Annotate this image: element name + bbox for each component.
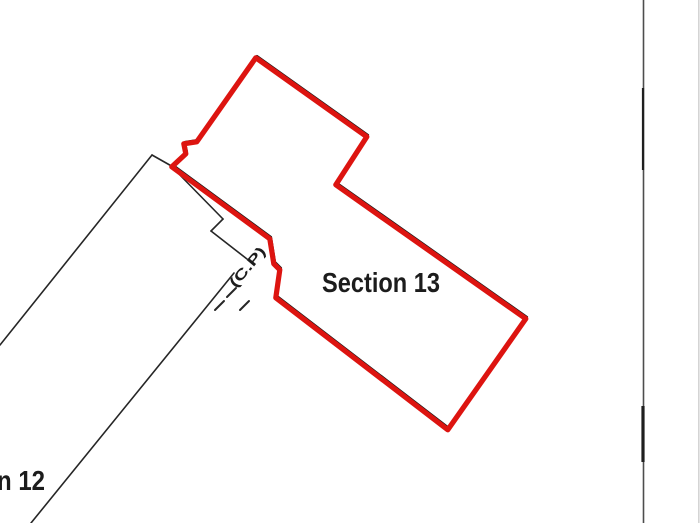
section12-label-partial: n 12 — [0, 465, 45, 496]
section13-label: Section 13 — [322, 267, 440, 298]
plat-map-canvas: Section 13 n 12 (C.P) — [0, 0, 700, 523]
lane-dash — [240, 301, 249, 310]
lane-dash — [227, 288, 236, 297]
lane-upper-edge — [211, 231, 247, 259]
cp-reserve-label: (C.P) — [226, 243, 269, 290]
lane-dash — [215, 301, 224, 310]
survey-plan-svg: Section 13 n 12 (C.P) — [0, 0, 700, 523]
lane-long-edge — [31, 273, 234, 523]
survey-reference-line — [643, 0, 644, 523]
notch-step-edge — [211, 219, 223, 231]
strip-upper-left-edge — [0, 155, 152, 345]
section13-boundary-red-highlight — [172, 58, 526, 430]
section13-red-highlight-line — [172, 58, 526, 430]
